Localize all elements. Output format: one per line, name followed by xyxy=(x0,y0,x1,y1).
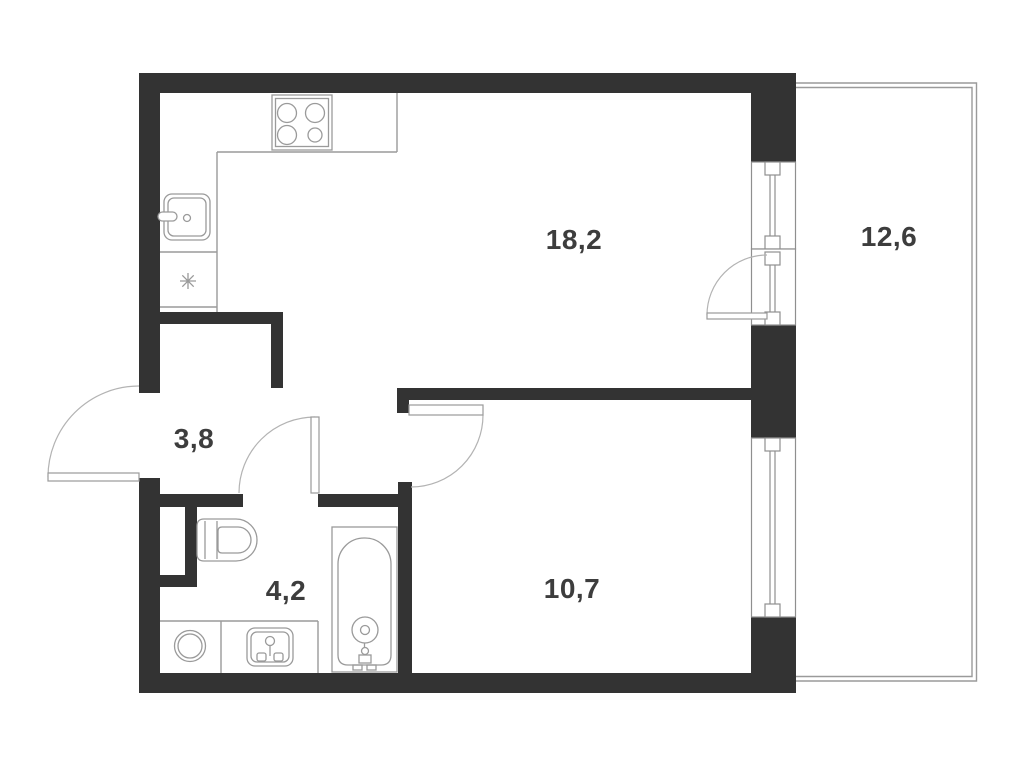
balcony-outline xyxy=(796,83,977,681)
wall-shaft-right xyxy=(185,494,197,587)
room-area-label-bedroom: 10,7 xyxy=(544,573,601,605)
room-area-label-hallway: 3,8 xyxy=(174,423,214,455)
floor-plan: 18,2 12,6 3,8 4,2 10,7 xyxy=(0,0,1024,768)
wall-top xyxy=(139,73,796,93)
entry-door-icon xyxy=(48,386,139,481)
wall-hallway-top xyxy=(159,312,283,324)
toilet-icon xyxy=(197,519,257,561)
wall-structure xyxy=(139,73,796,693)
bathroom-door-icon xyxy=(239,417,319,493)
wall-right-upper xyxy=(751,93,796,162)
wall-right-lower xyxy=(751,617,796,673)
bathroom-counter xyxy=(160,621,318,673)
wall-left-upper xyxy=(139,73,160,393)
window-icon xyxy=(752,162,796,249)
room-area-label-kitchen-living: 18,2 xyxy=(546,224,603,256)
stove-icon xyxy=(272,95,332,150)
bathroom-sink-icon xyxy=(247,628,293,666)
washing-machine-icon xyxy=(175,631,206,662)
bedroom-door-icon xyxy=(409,405,483,487)
wall-hallway-top-stub xyxy=(271,324,283,388)
bathtub-icon xyxy=(332,527,397,672)
wall-bathroom-top-right xyxy=(318,494,398,507)
fridge-asterisk-icon xyxy=(180,273,196,289)
wall-room-divider-stub xyxy=(397,400,409,413)
wall-bathroom-east xyxy=(398,482,412,673)
wall-room-divider xyxy=(397,388,751,400)
wall-shaft-bottom xyxy=(139,575,197,587)
balcony-door-icon xyxy=(707,249,796,325)
wall-bottom xyxy=(139,673,796,693)
wall-right-middle xyxy=(751,325,796,438)
window-icon xyxy=(752,438,796,617)
room-area-label-bathroom: 4,2 xyxy=(266,575,306,607)
kitchen-sink-icon xyxy=(158,194,210,240)
room-area-label-balcony: 12,6 xyxy=(861,221,918,253)
floor-plan-drawing xyxy=(0,0,1024,768)
